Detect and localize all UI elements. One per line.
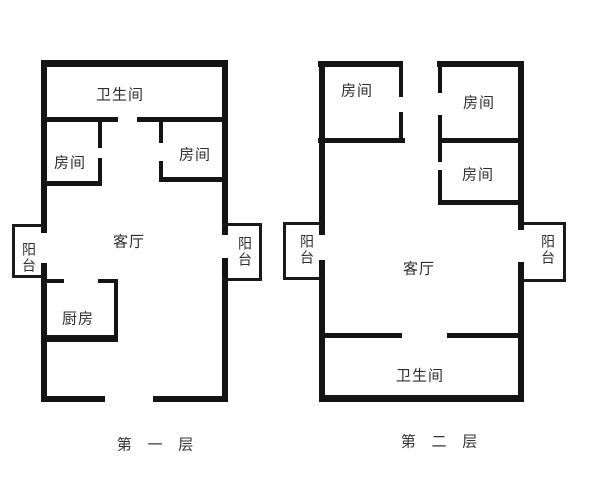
f2-bedroomTR-left-wall-lower xyxy=(438,115,442,139)
f1-caption: 第 一 层 xyxy=(117,434,200,455)
f1-balconyR-wall-bottom xyxy=(222,278,262,281)
f2-balconyL-wall-bottom xyxy=(283,277,322,280)
f2-bathroom-label: 卫生间 xyxy=(396,370,444,385)
f1-bedroomL-right-wall-upper xyxy=(98,122,102,148)
f2-wall-right-lower xyxy=(518,262,524,402)
f1-wall-right-upper xyxy=(222,60,228,235)
f1-balconyL-wall-top xyxy=(12,224,44,227)
f2-living-room-label: 客厅 xyxy=(403,263,435,278)
f1-bedroom-left-label: 房间 xyxy=(54,157,86,172)
f1-bedroom-right-label: 房间 xyxy=(179,149,211,164)
f2-bedroomTR-left-wall-upper xyxy=(438,67,442,93)
f1-kitchen-wall-top-left xyxy=(42,279,64,283)
f1-kitchen-wall-right xyxy=(114,279,118,341)
f1-balconyR-wall-top xyxy=(222,223,262,226)
f1-living-room-label: 客厅 xyxy=(113,236,145,251)
f2-wall-left-lower xyxy=(319,260,325,402)
f2-bedroomTL-right-wall-upper xyxy=(399,67,403,97)
f2-caption: 第 二 层 xyxy=(401,431,484,452)
f2-balconyL-wall-top xyxy=(283,222,322,225)
f1-bathroom-wall-left xyxy=(42,117,118,122)
f2-bedroomTL-wall-bottom xyxy=(318,138,405,143)
f2-balconyR-wall-right xyxy=(563,222,566,282)
f1-wall-left-upper xyxy=(41,60,47,233)
f2-bedroomTL-right-wall-lower xyxy=(399,112,403,139)
f2-bedroom-top-left-label: 房间 xyxy=(341,85,373,100)
f2-wall-top-right xyxy=(437,61,524,67)
f2-balconyL-wall-left xyxy=(283,222,286,280)
f2-bedroomMR-left-wall-upper xyxy=(438,143,442,162)
f2-wall-top-left xyxy=(318,61,403,67)
f1-kitchen-wall-bottom xyxy=(41,335,118,342)
f1-balcony-left-label: 阳台 xyxy=(20,242,34,274)
f1-balconyL-wall-bottom xyxy=(12,275,44,278)
f2-balcony-right-label: 阳台 xyxy=(539,234,553,266)
f2-bathroom-wall-left xyxy=(319,333,402,338)
f1-wall-left-lower xyxy=(41,263,47,402)
f1-wall-top xyxy=(42,60,227,67)
f2-bedroomMR-wall-bottom xyxy=(438,200,524,205)
floorplan-canvas: 卫生间 房间 房间 客厅 厨房 阳台 阳台 第 一 层 房间 房间 房间 客厅 … xyxy=(0,0,600,491)
f2-wall-bottom xyxy=(319,395,524,402)
f1-bathroom-label: 卫生间 xyxy=(96,89,144,104)
f1-bedroomL-wall-bottom xyxy=(42,181,102,186)
f2-bedroom-mid-right-label: 房间 xyxy=(462,169,494,184)
f1-wall-bottom-right xyxy=(153,396,228,402)
f1-bathroom-wall-right xyxy=(137,117,223,122)
f2-balcony-left-label: 阳台 xyxy=(298,234,312,266)
f1-bedroomR-left-wall-upper xyxy=(159,122,163,143)
f1-balconyR-wall-right xyxy=(259,223,262,281)
f2-bedroomMR-left-wall-lower xyxy=(438,170,442,200)
f2-bathroom-wall-right xyxy=(447,333,524,338)
f2-bedroom-top-right-label: 房间 xyxy=(463,97,495,112)
f2-balconyR-wall-bottom xyxy=(523,279,566,282)
f2-wall-left-upper xyxy=(319,61,325,235)
f1-balconyL-wall-left xyxy=(12,224,15,278)
f2-balconyR-wall-top xyxy=(523,222,566,225)
f1-bedroomR-wall-bottom xyxy=(159,177,228,182)
f1-kitchen-label: 厨房 xyxy=(62,313,94,328)
f1-balcony-right-label: 阳台 xyxy=(236,236,250,268)
f1-wall-bottom-left xyxy=(41,396,105,402)
f2-bedroom-divider-wall xyxy=(438,138,524,143)
